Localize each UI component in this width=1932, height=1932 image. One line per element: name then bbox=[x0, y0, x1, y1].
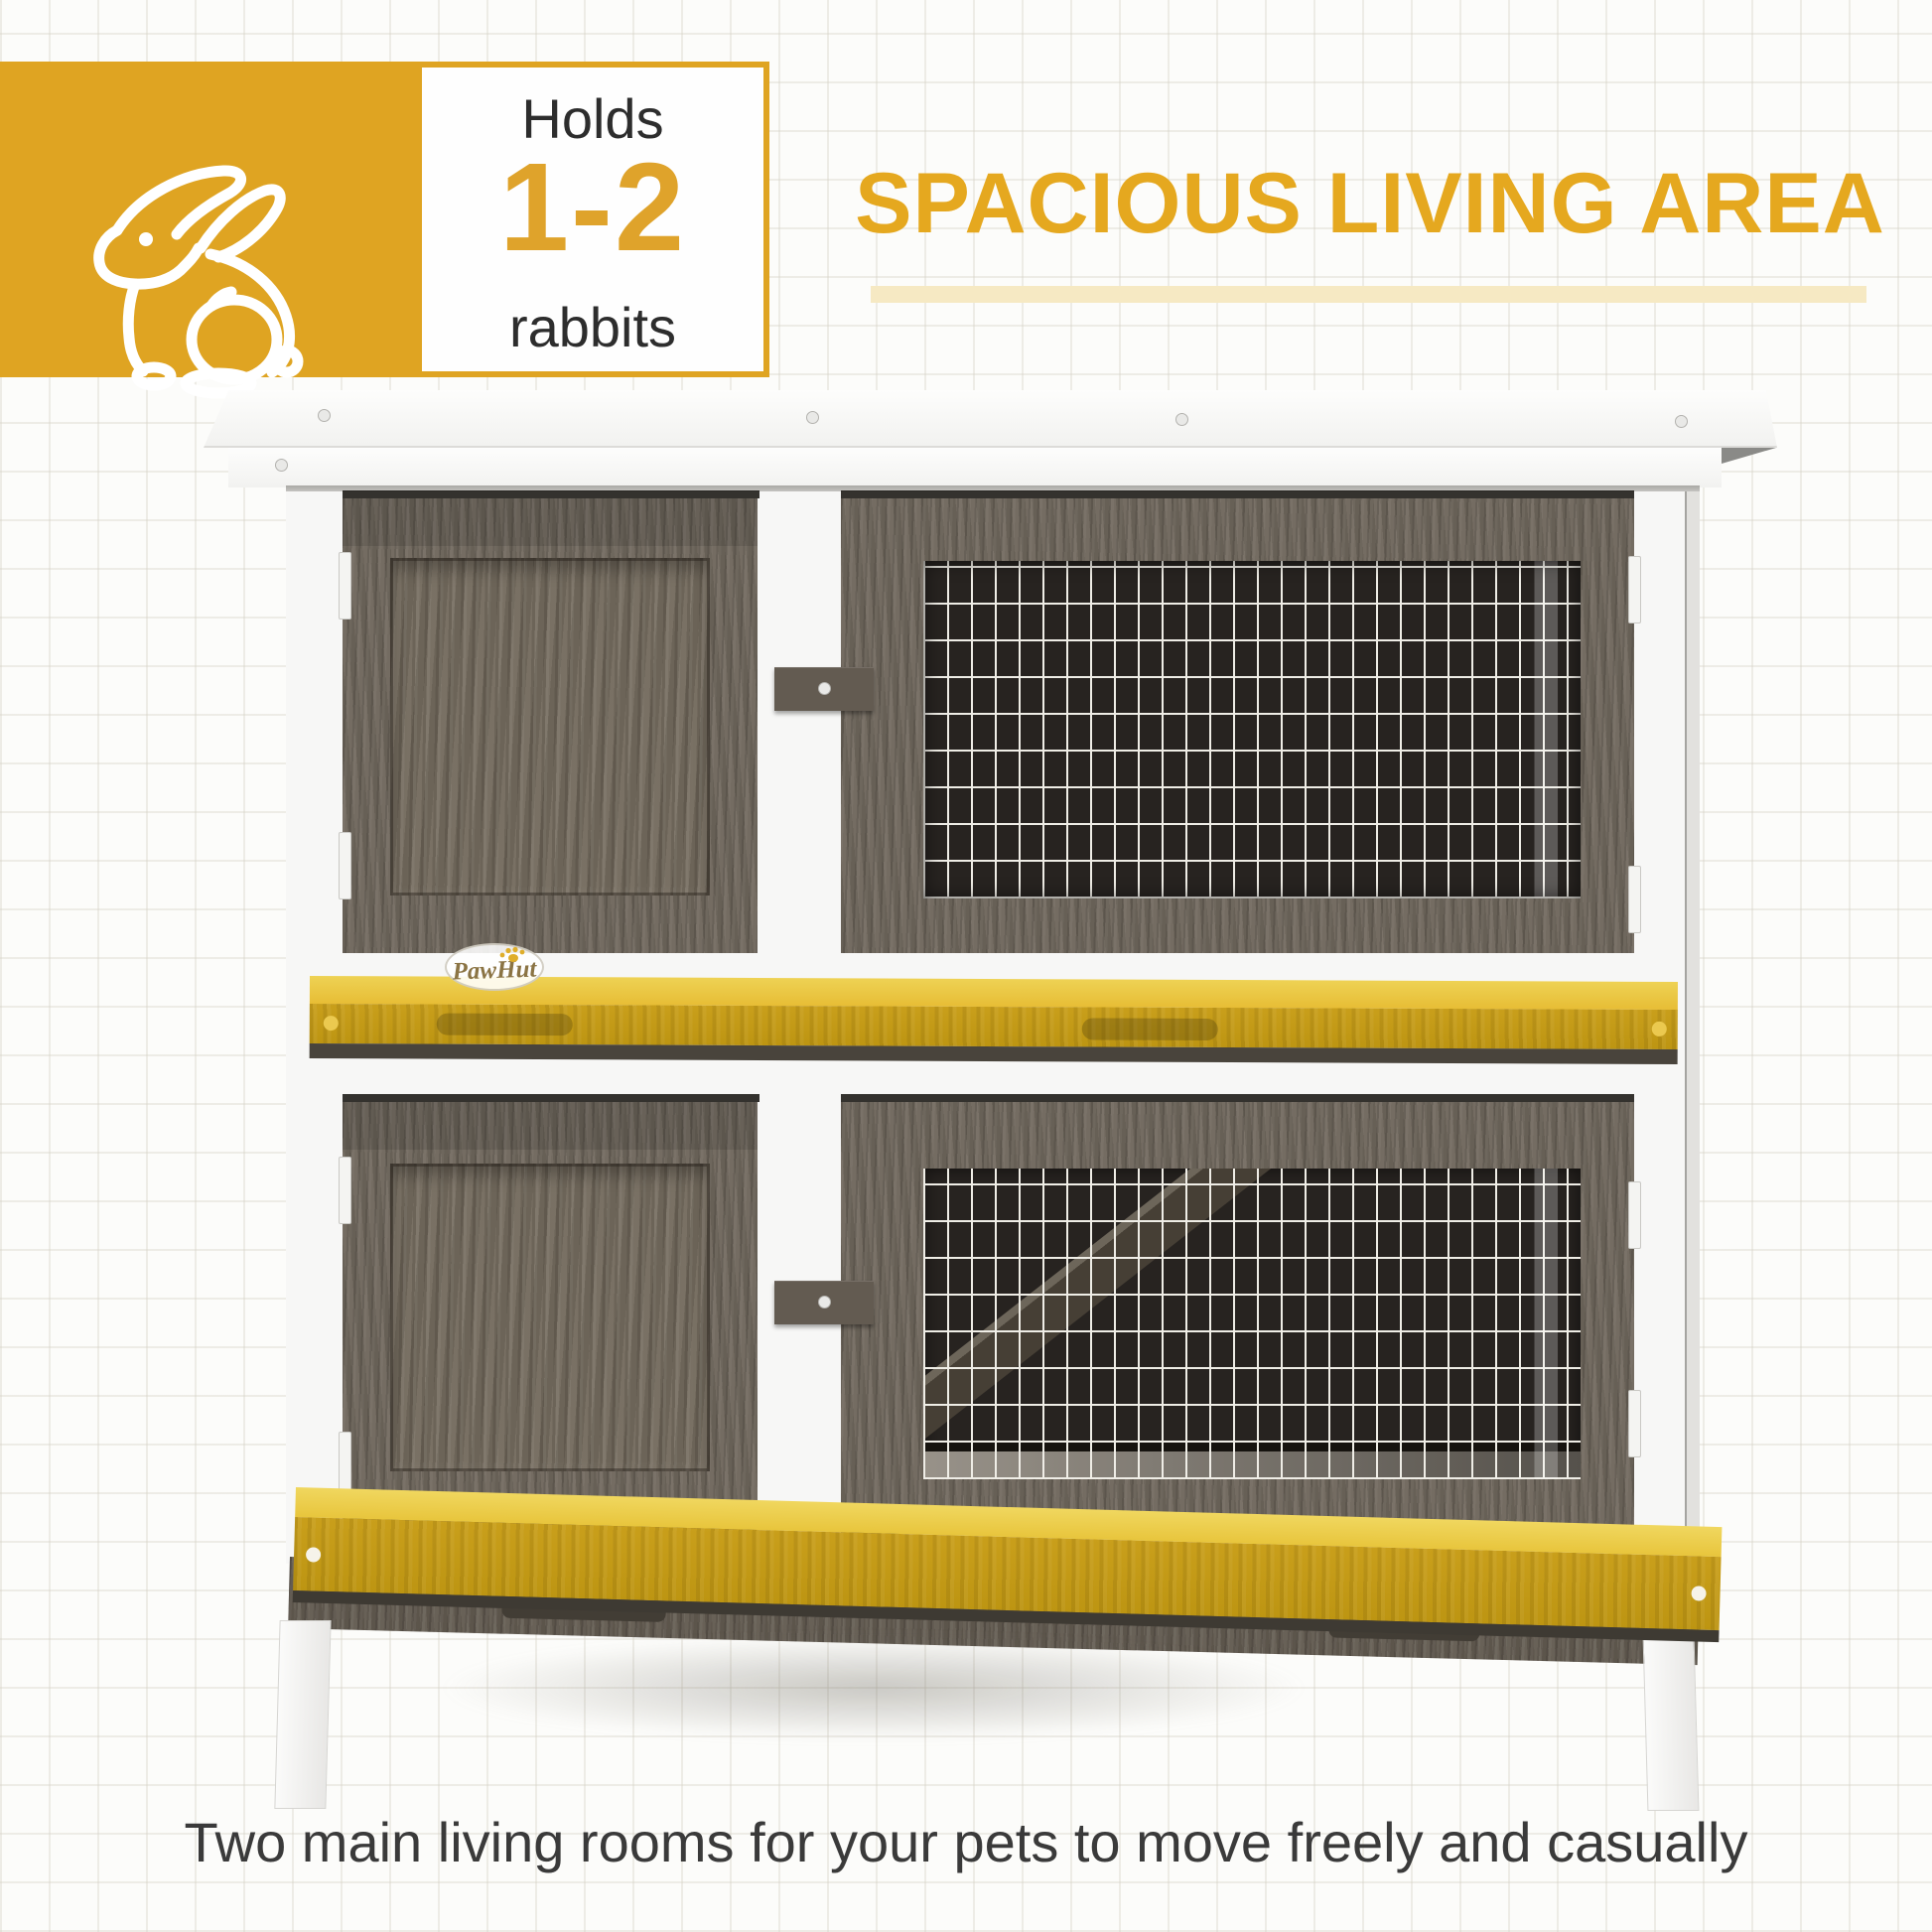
door-hinge bbox=[339, 1157, 351, 1224]
hutch-leg-right bbox=[1643, 1636, 1700, 1811]
hutch-right-side-panel bbox=[1685, 491, 1700, 1564]
tier2-mesh-window bbox=[841, 1102, 1634, 1534]
tier1-left-door bbox=[343, 498, 758, 953]
tier2-left-door bbox=[343, 1102, 758, 1534]
tier2-wire-mesh bbox=[923, 1169, 1581, 1479]
door-inner-panel bbox=[390, 558, 710, 896]
badge-animal-label: rabbits bbox=[422, 300, 763, 355]
rabbit-front-paw bbox=[137, 367, 171, 385]
hutch-roof-top bbox=[204, 390, 1777, 448]
roof-overhang-shadow bbox=[1722, 448, 1776, 464]
badge-capacity-value: 1-2 bbox=[422, 145, 763, 270]
latch-screw bbox=[818, 682, 831, 695]
paw-icon bbox=[498, 947, 528, 963]
product-infographic: Holds 1-2 rabbits SPACIOUS LIVING AREA bbox=[0, 0, 1932, 1932]
roof-screw bbox=[318, 409, 331, 422]
window-hinge bbox=[1628, 866, 1641, 933]
middle-tray bbox=[310, 976, 1678, 1073]
roof-screw bbox=[806, 411, 819, 424]
window-hinge bbox=[1628, 1390, 1641, 1457]
caption-text: Two main living rooms for your pets to m… bbox=[0, 1809, 1932, 1875]
door-hinge bbox=[339, 552, 351, 620]
window-hinge bbox=[1628, 1181, 1641, 1249]
rabbit-eye bbox=[139, 232, 153, 246]
tray-front-face bbox=[310, 1004, 1678, 1049]
rabbit-front-leg bbox=[128, 284, 143, 371]
mesh-reflection bbox=[923, 1169, 1581, 1479]
tier2-door-gap bbox=[343, 1094, 759, 1102]
latch-screw bbox=[818, 1296, 831, 1309]
rabbit-haunch bbox=[192, 300, 277, 379]
door-top-rail bbox=[343, 498, 758, 546]
tier2-window-gap bbox=[841, 1094, 1634, 1102]
window-hinge bbox=[1628, 556, 1641, 623]
tier1-door-gap bbox=[343, 490, 759, 498]
hutch-leg-left bbox=[274, 1620, 331, 1809]
tray-screw bbox=[324, 1016, 339, 1031]
tray-screw bbox=[1652, 1022, 1667, 1036]
door-latch-tier2 bbox=[774, 1281, 874, 1324]
tier1-mesh-window bbox=[841, 498, 1634, 953]
hutch-roof-fascia bbox=[228, 448, 1722, 487]
door-top-rail bbox=[343, 1102, 758, 1150]
section-title: SPACIOUS LIVING AREA bbox=[846, 161, 1894, 246]
capacity-badge: Holds 1-2 rabbits bbox=[0, 62, 769, 377]
title-underline bbox=[871, 286, 1866, 303]
roof-screw bbox=[1675, 415, 1688, 428]
ground-shadow bbox=[298, 1618, 1449, 1757]
fascia-screw bbox=[275, 459, 288, 472]
door-inner-panel bbox=[390, 1164, 710, 1471]
roof-screw bbox=[1175, 413, 1188, 426]
tier1-window-gap bbox=[841, 490, 1634, 498]
tray-handle-slot bbox=[437, 1014, 573, 1036]
capacity-panel: Holds 1-2 rabbits bbox=[422, 68, 763, 371]
door-hinge bbox=[339, 832, 351, 899]
tray-handle-slot bbox=[1082, 1018, 1218, 1040]
door-latch-tier1 bbox=[774, 667, 874, 711]
tier1-wire-mesh bbox=[923, 561, 1581, 898]
brand-logo: PawHut bbox=[445, 943, 544, 991]
